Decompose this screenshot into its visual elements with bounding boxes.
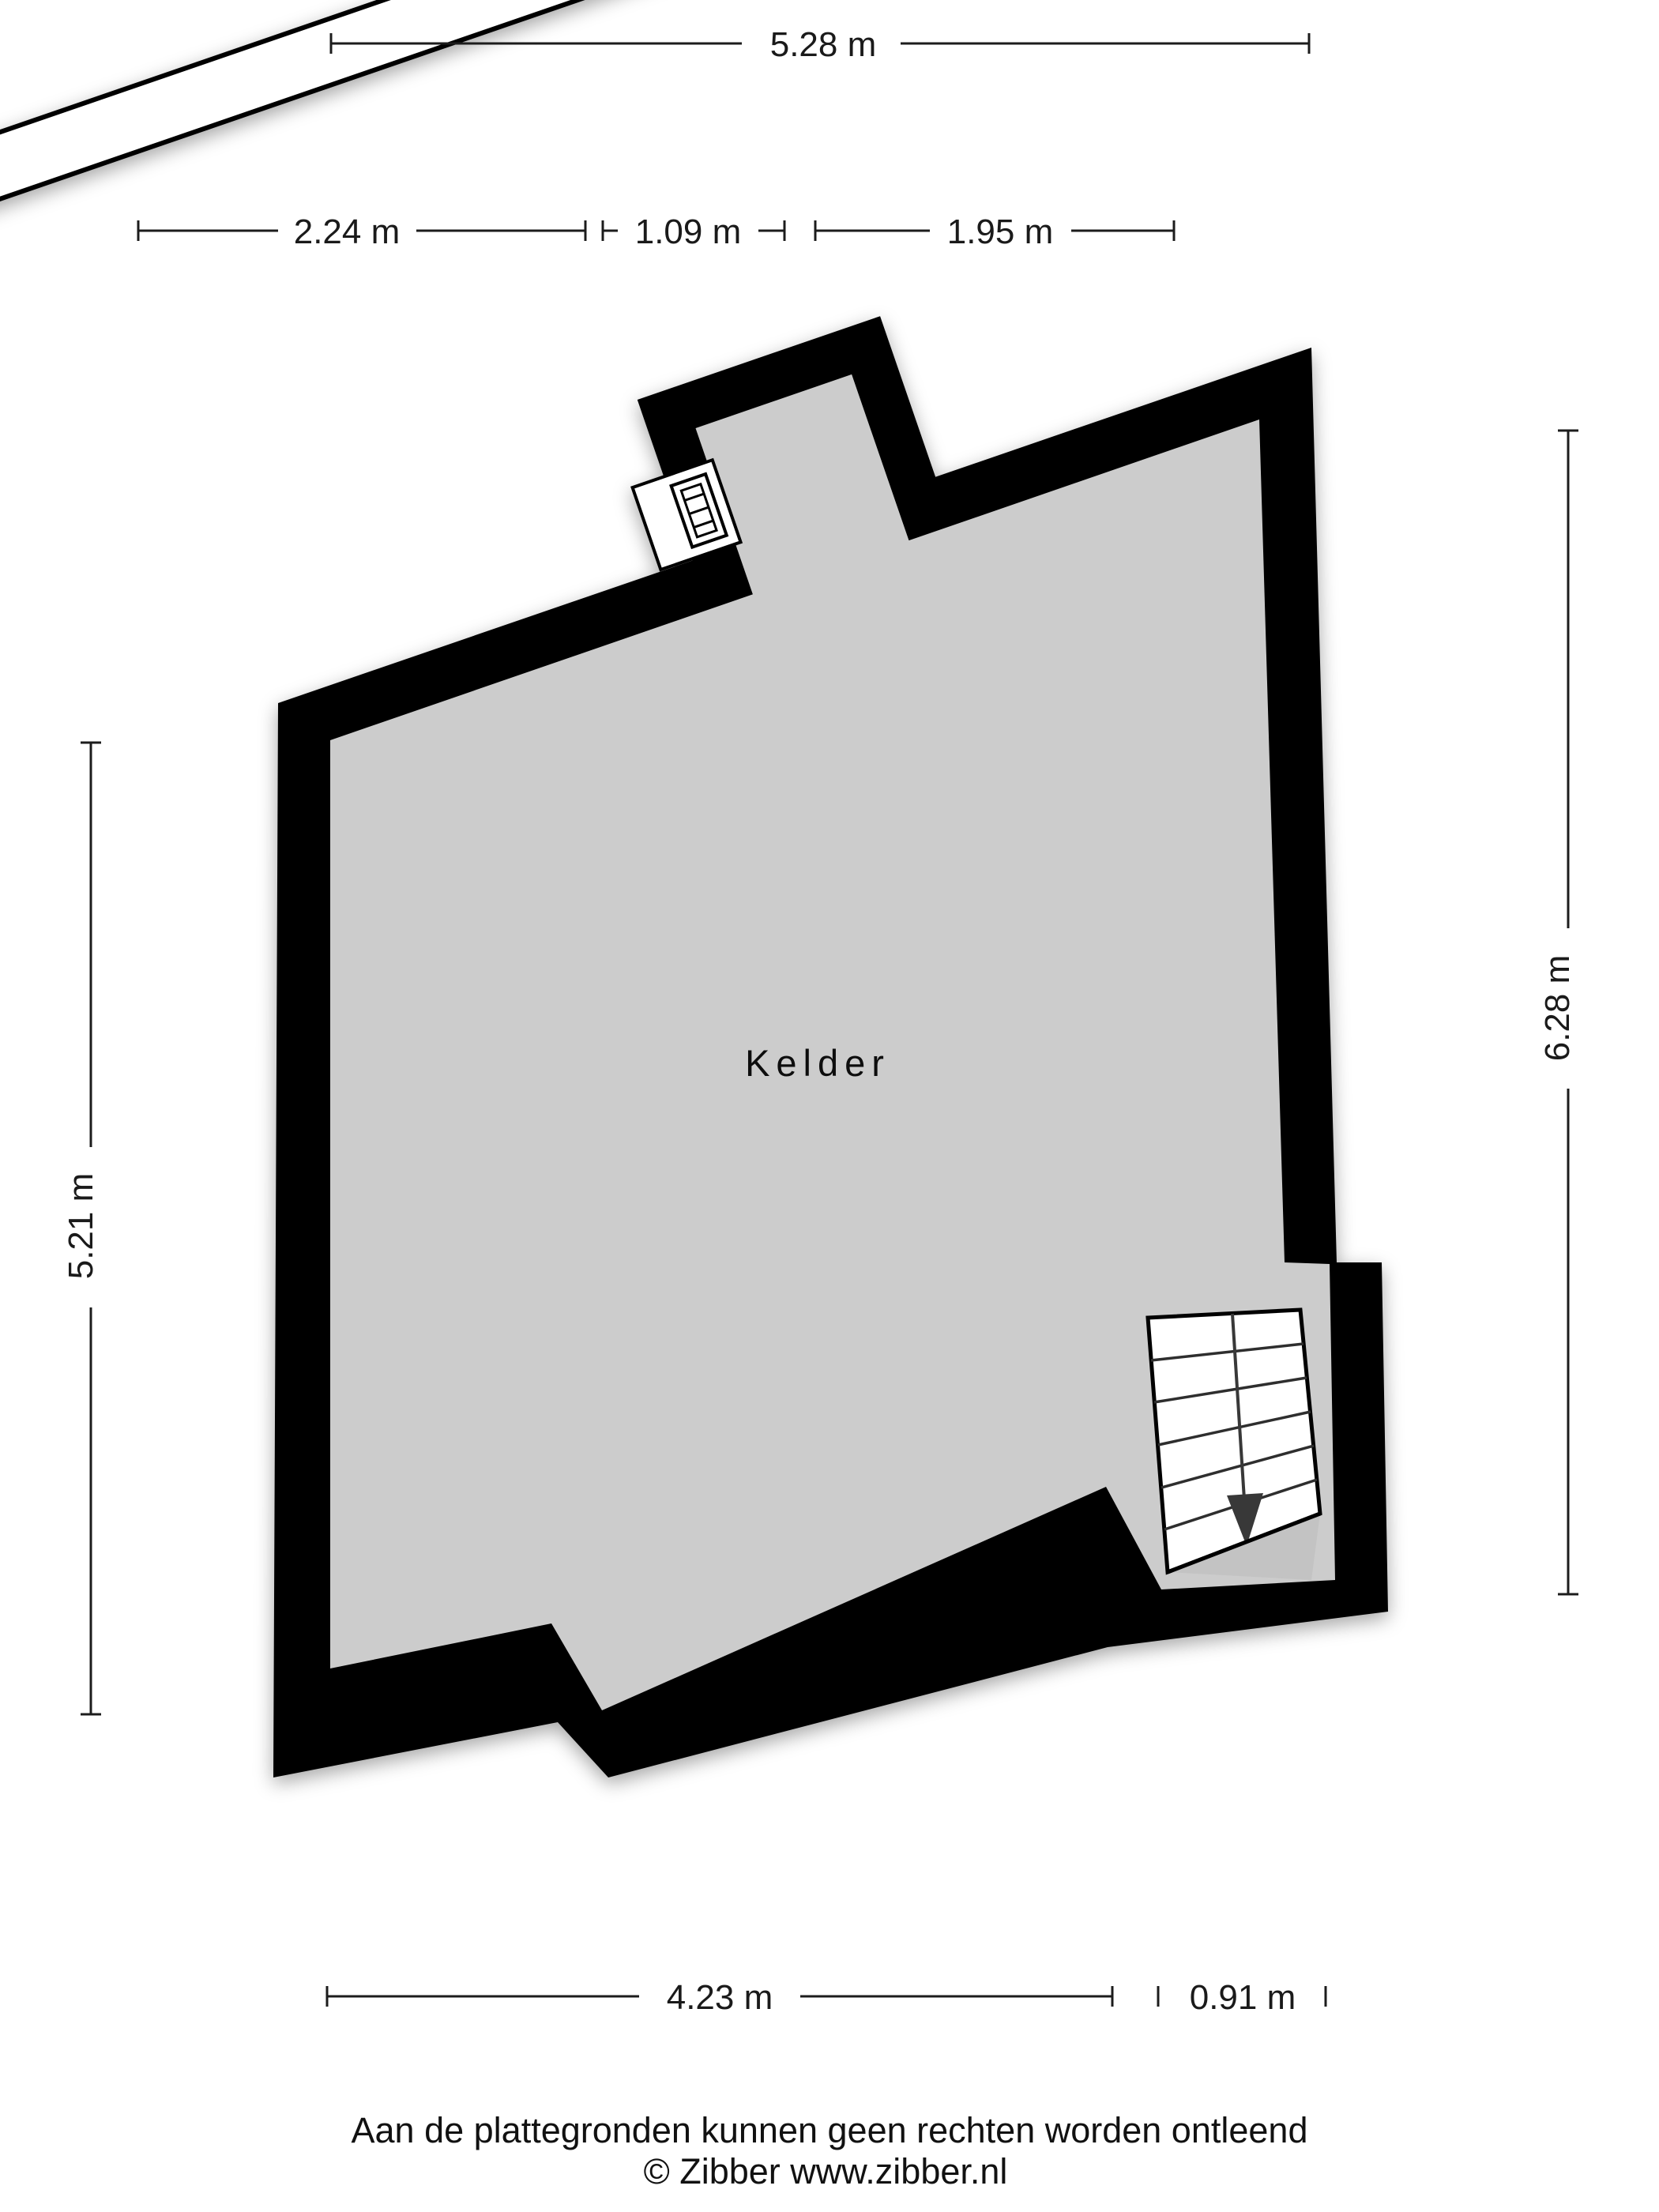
floorplan-body: Kelder (0, 0, 1388, 1777)
staircase (1148, 1310, 1320, 1580)
dimension-bottom-right-label: 0.91 m (1190, 1978, 1296, 2017)
dimension-right-label: 6.28 m (1538, 955, 1577, 1062)
beam-group (0, 0, 805, 242)
dimension-top-middle-label: 1.09 m (635, 213, 742, 251)
ceiling-beam (0, 0, 805, 242)
floorplan-page: Kelder (0, 0, 1659, 2212)
footer-disclaimer: Aan de plattegronden kunnen geen rechten… (352, 2110, 1308, 2150)
dimension-top-right-label: 1.95 m (947, 213, 1054, 251)
footer: Aan de plattegronden kunnen geen rechten… (352, 2110, 1308, 2191)
dimension-bottom-left-label: 4.23 m (667, 1978, 773, 2017)
floorplan-svg: Kelder (0, 0, 1659, 2212)
room-label: Kelder (745, 1042, 890, 1084)
dimension-left-label: 5.21 m (62, 1173, 100, 1280)
footer-copyright: © Zibber www.zibber.nl (644, 2151, 1008, 2191)
dimension-top-total-label: 5.28 m (770, 25, 877, 64)
dimension-top-left-label: 2.24 m (294, 213, 401, 251)
